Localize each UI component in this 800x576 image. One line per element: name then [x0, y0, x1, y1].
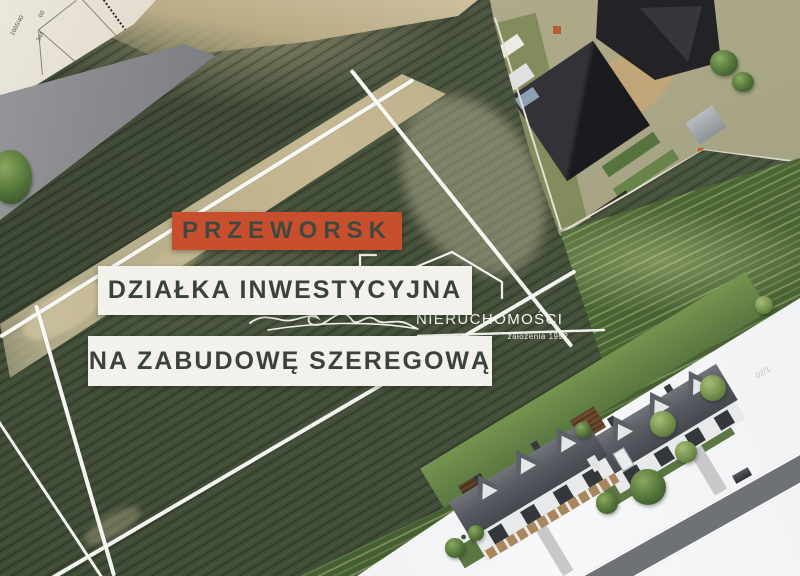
parcel-tree: [710, 50, 738, 76]
render-tree: [575, 422, 591, 438]
render-tree: [596, 492, 618, 514]
chimney: [553, 26, 561, 34]
render-tree: [755, 296, 773, 314]
render-tree: [675, 441, 697, 463]
survey-number-label: 60: [38, 10, 46, 19]
render-tree: [700, 375, 726, 401]
headline-box-2: NA ZABUDOWĘ SZEREGOWĄ: [88, 336, 492, 386]
listing-hero-image: 1605/40 60 344: [0, 0, 800, 576]
parcel-tree: [732, 72, 754, 92]
headline-line1: DZIAŁKA INWESTYCYJNA: [108, 276, 462, 305]
render-tree: [630, 469, 666, 505]
headline-line2: NA ZABUDOWĘ SZEREGOWĄ: [89, 347, 491, 376]
render-tree: [650, 411, 676, 437]
location-badge: PRZEWORSK: [172, 212, 402, 250]
headline-box-1: DZIAŁKA INWESTYCYJNA: [98, 266, 472, 315]
location-badge-label: PRZEWORSK: [182, 217, 392, 245]
render-tree: [445, 538, 465, 558]
parcel-number-label: 1605/40: [10, 15, 25, 37]
render-tree: [468, 525, 484, 541]
